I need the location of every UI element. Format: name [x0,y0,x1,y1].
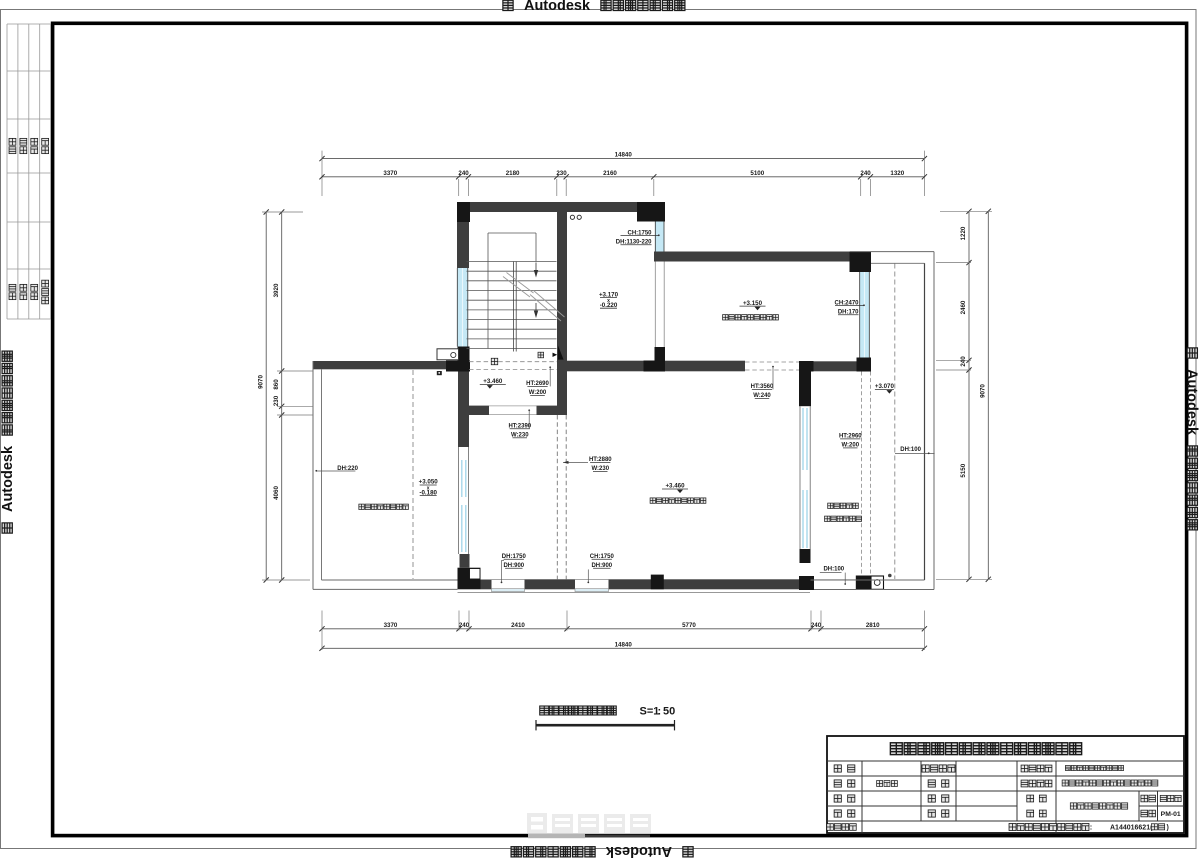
svg-text:Autodesk: Autodesk [524,0,591,14]
svg-text:1220: 1220 [960,226,967,240]
svg-text:240: 240 [458,170,469,177]
svg-text:240: 240 [811,622,822,629]
svg-text:A144016621(: A144016621( [1110,825,1153,832]
svg-text:230: 230 [556,170,567,177]
svg-text:PM-01: PM-01 [1161,811,1181,818]
svg-text:S=1: S=1 [640,706,660,718]
svg-text:2410: 2410 [511,622,525,629]
svg-text:9070: 9070 [980,384,987,398]
svg-text::: : [658,706,662,718]
svg-text:240: 240 [960,356,967,367]
svg-text:3370: 3370 [383,170,397,177]
svg-text:230: 230 [273,395,280,406]
svg-text:3920: 3920 [273,283,280,297]
svg-text:DH:100: DH:100 [823,566,844,572]
svg-text:2160: 2160 [603,170,617,177]
svg-text:1320: 1320 [890,170,904,177]
svg-text:240: 240 [860,170,871,177]
svg-text:): ) [1167,825,1169,832]
svg-text:Autodesk: Autodesk [1184,369,1200,436]
svg-text:14840: 14840 [615,152,633,159]
svg-text:2460: 2460 [960,300,967,314]
svg-text:14840: 14840 [615,641,633,648]
svg-text:4060: 4060 [273,486,280,500]
svg-text:3370: 3370 [384,622,398,629]
svg-text:DH:100: DH:100 [900,447,921,453]
svg-text:5150: 5150 [960,463,967,477]
svg-text:9070: 9070 [257,375,264,389]
svg-text:50: 50 [663,706,675,718]
svg-text::: : [1090,823,1093,832]
svg-text:5100: 5100 [750,170,764,177]
svg-text:5770: 5770 [682,622,696,629]
svg-text:Autodesk: Autodesk [605,843,672,859]
svg-text:2810: 2810 [866,622,880,629]
svg-text:860: 860 [273,379,280,390]
svg-text:2180: 2180 [506,170,520,177]
svg-text:Autodesk: Autodesk [0,445,16,512]
svg-text:240: 240 [459,622,470,629]
